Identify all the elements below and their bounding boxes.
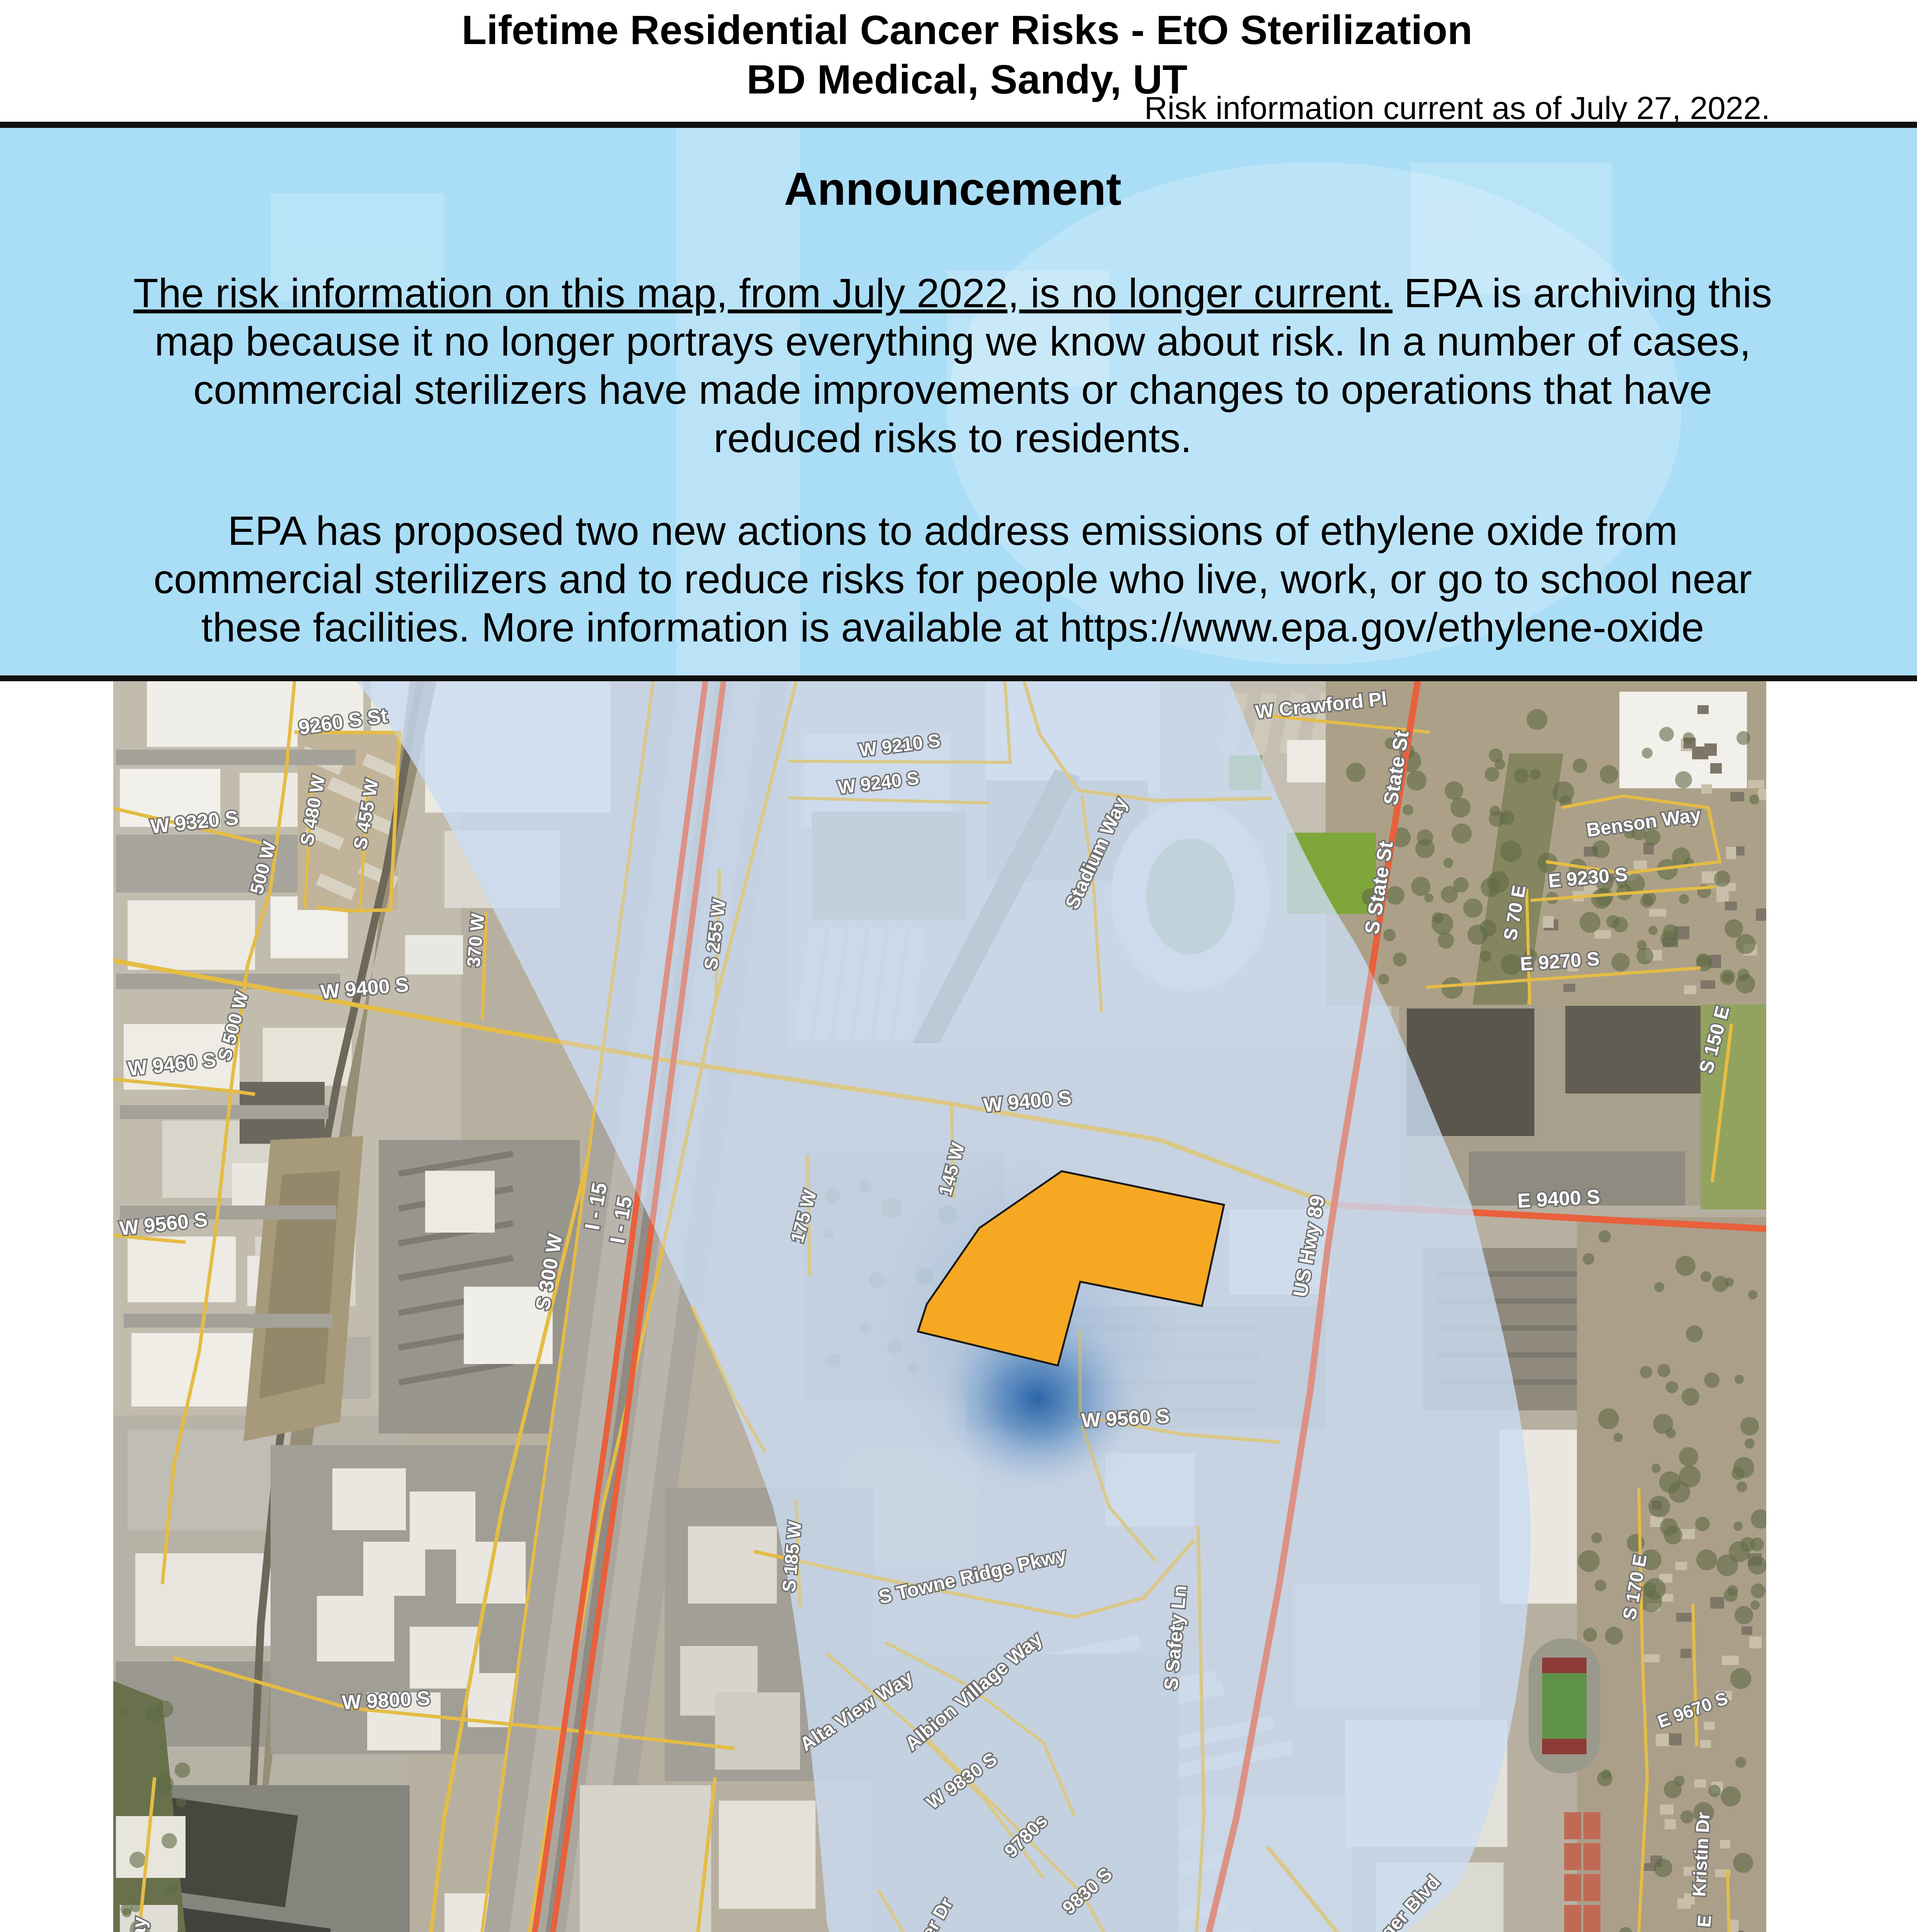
svg-text:E 9400 S: E 9400 S <box>1517 1185 1601 1212</box>
svg-text:W 9800 S: W 9800 S <box>342 1687 431 1714</box>
svg-text:175 E: 175 E <box>1691 1914 1716 1932</box>
svg-text:W 9560 S: W 9560 S <box>1081 1405 1170 1432</box>
